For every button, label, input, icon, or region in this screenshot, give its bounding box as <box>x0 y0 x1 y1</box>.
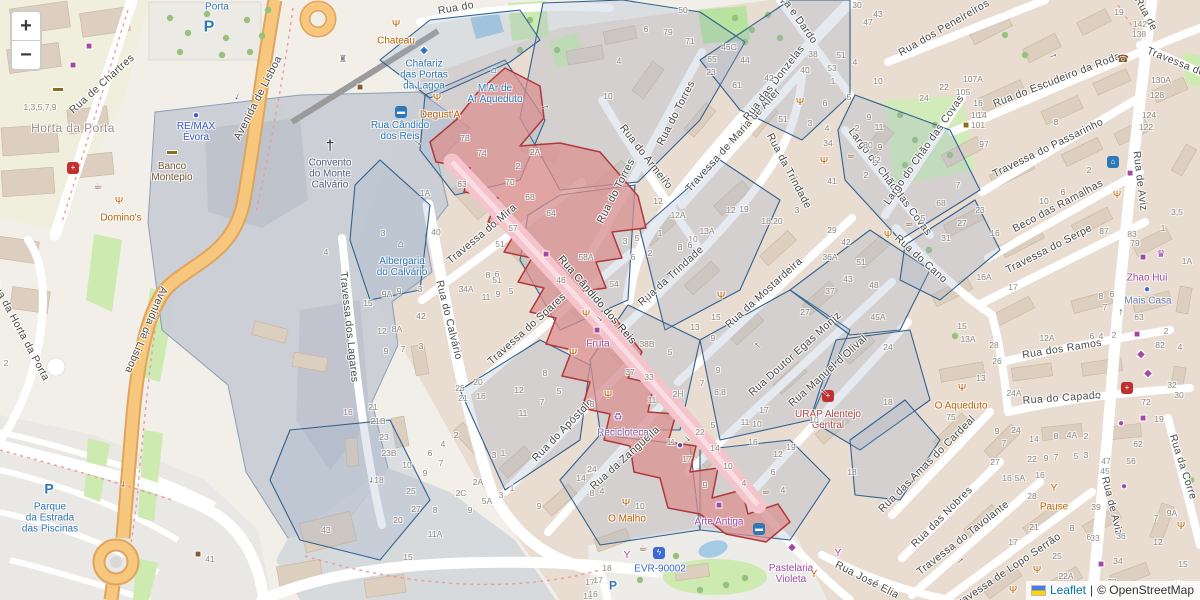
attribution-separator: | <box>1090 583 1093 597</box>
parking-lot-top <box>149 2 261 60</box>
zoom-in-button[interactable]: + <box>12 12 40 41</box>
attribution-bar: Leaflet | © OpenStreetMap <box>1026 581 1200 600</box>
ukraine-flag-icon <box>1031 585 1046 596</box>
map-canvas[interactable]: Rua de ChartresAvenida de LisboaAvenida … <box>0 0 1200 600</box>
leaflet-link[interactable]: Leaflet <box>1050 583 1086 597</box>
zoom-out-button[interactable]: − <box>12 41 40 69</box>
openstreetmap-link[interactable]: © OpenStreetMap <box>1097 583 1194 597</box>
zoom-control: + − <box>10 10 42 71</box>
map-base <box>0 0 1200 600</box>
